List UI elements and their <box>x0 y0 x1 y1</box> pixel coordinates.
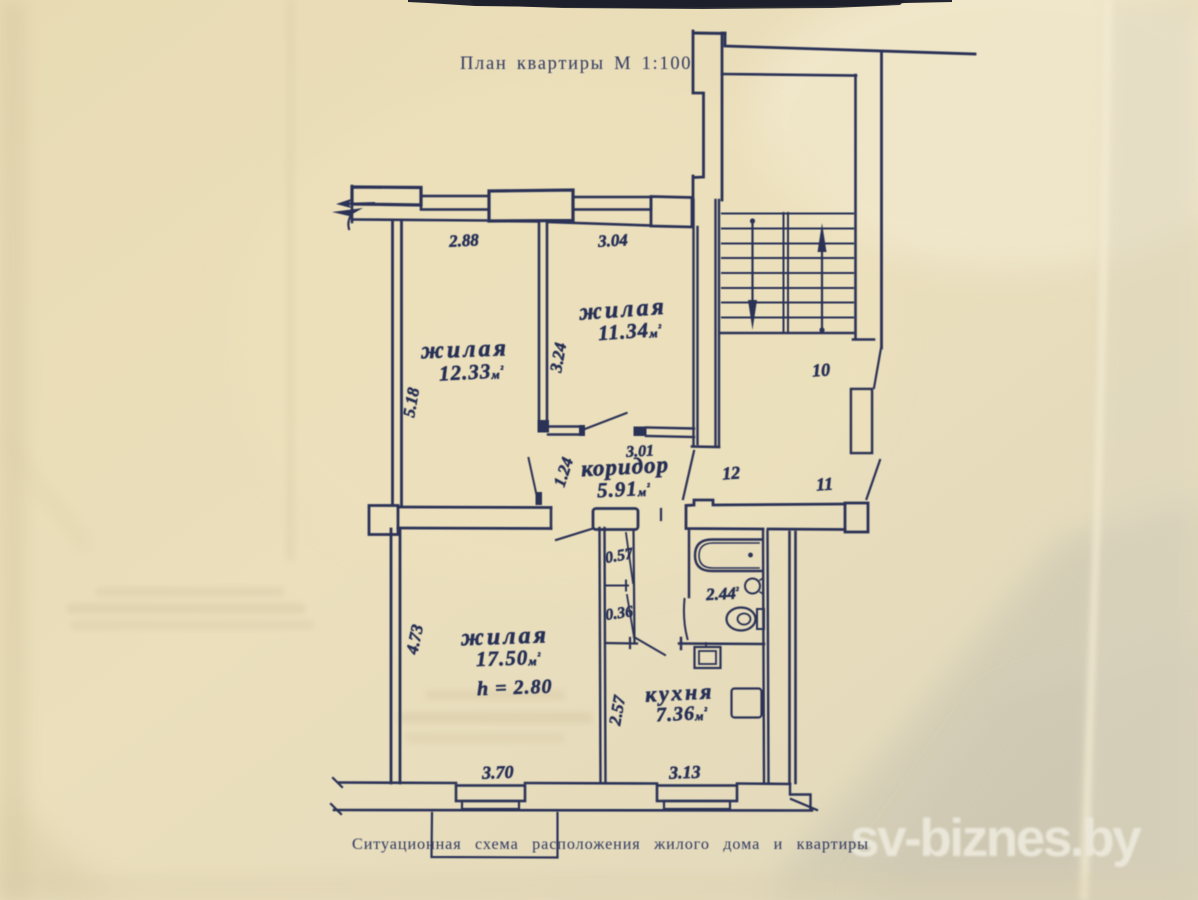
svg-text:3.13: 3.13 <box>668 762 701 783</box>
svg-text:3.04: 3.04 <box>597 230 629 251</box>
svg-text:sv-biznes.by: sv-biznes.by <box>850 809 1142 868</box>
svg-text:11: 11 <box>815 474 833 495</box>
svg-text:2.88: 2.88 <box>448 230 480 251</box>
svg-text:h = 2.80: h = 2.80 <box>477 676 553 701</box>
svg-text:10: 10 <box>811 359 830 380</box>
svg-text:План квартиры М 1:100: План квартиры М 1:100 <box>460 54 692 74</box>
svg-text:3.01: 3.01 <box>625 442 655 460</box>
svg-text:3.70: 3.70 <box>481 762 514 783</box>
svg-text:12: 12 <box>721 462 740 483</box>
svg-text:Ситуационная схема расположени: Ситуационная схема расположения жилого д… <box>352 835 869 853</box>
svg-text:2.44²: 2.44² <box>705 583 741 604</box>
